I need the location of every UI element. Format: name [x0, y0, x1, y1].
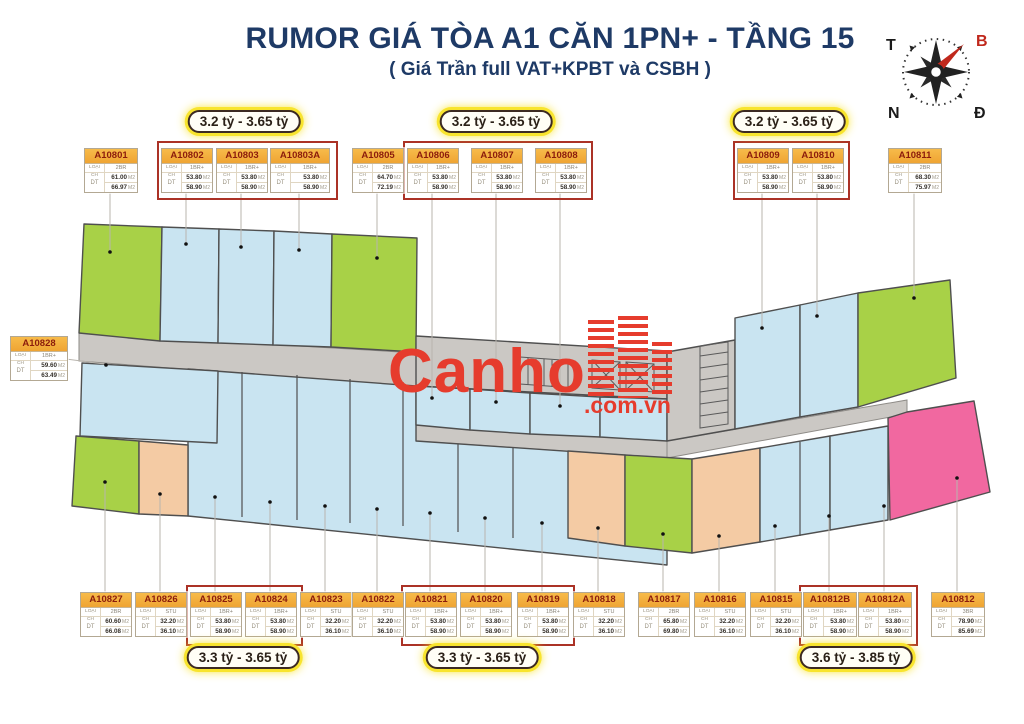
- flyer-page: { "title": "RUMOR GIÁ TÒA A1 CĂN 1PN+ - …: [0, 0, 1024, 724]
- area-number: 58.90: [186, 184, 202, 191]
- area-unit: M2: [287, 619, 294, 625]
- area-unit: M2: [258, 175, 265, 181]
- unit-area-value: 36.10M2: [373, 626, 403, 636]
- unit-area-label: DT: [793, 173, 813, 192]
- unit-marker-dot: [540, 521, 544, 525]
- unit-area-value: 32.20M2: [594, 617, 624, 626]
- area-number: 53.80: [560, 174, 576, 181]
- unit-type: 1BR+: [31, 352, 67, 361]
- compass-rose-icon: T B N Đ: [878, 14, 990, 122]
- unit-marker-dot: [912, 296, 916, 300]
- area-number: 85.69: [958, 628, 974, 635]
- area-unit: M2: [736, 629, 743, 635]
- area-number: 59.60: [41, 362, 57, 369]
- unit-type: 1BR+: [758, 164, 788, 173]
- unit-area-value: 68.30M2: [909, 173, 941, 182]
- unit-id: A10819: [518, 593, 568, 608]
- area-number: 53.80: [215, 618, 231, 625]
- unit-id: A10822: [353, 593, 403, 608]
- area-unit: M2: [847, 619, 854, 625]
- unit-area-value: 58.90M2: [237, 182, 267, 192]
- unit-marker-dot: [239, 245, 243, 249]
- unit-type: 1BR+: [426, 608, 456, 617]
- unit-area-label: DT: [406, 617, 426, 636]
- area-number: 53.80: [186, 174, 202, 181]
- area-unit: M2: [577, 185, 584, 191]
- area-number: 58.90: [215, 628, 231, 635]
- unit-area-value: 63.49M2: [31, 370, 67, 380]
- compass-label-east: Đ: [974, 105, 986, 122]
- unit-type-label: LOẠI CH: [518, 608, 538, 617]
- unit-a10815-a10812b: [760, 436, 830, 542]
- unit-type: 1BR+: [291, 164, 329, 173]
- unit-marker-dot: [323, 504, 327, 508]
- unit-area-label: DT: [136, 617, 156, 636]
- area-unit: M2: [128, 185, 135, 191]
- area-unit: M2: [122, 629, 129, 635]
- area-number: 58.90: [817, 184, 833, 191]
- unit-marker-dot: [297, 248, 301, 252]
- unit-area-label: DT: [162, 173, 182, 192]
- unit-a10805: [331, 234, 417, 352]
- unit-type: 1BR+: [879, 608, 911, 617]
- unit-card: A10818LOẠI CHSTUDT32.20M236.10M2: [573, 592, 625, 637]
- unit-type: STU: [321, 608, 351, 617]
- area-number: 58.90: [485, 628, 501, 635]
- area-unit: M2: [779, 185, 786, 191]
- area-number: 53.80: [762, 174, 778, 181]
- unit-type: 1BR+: [824, 608, 856, 617]
- area-number: 36.10: [775, 628, 791, 635]
- unit-a10828: [80, 363, 218, 443]
- unit-type: 2BR: [373, 164, 403, 173]
- area-number: 72.19: [377, 184, 393, 191]
- unit-type: 2BR: [105, 164, 137, 173]
- unit-id: A10809: [738, 149, 788, 164]
- area-unit: M2: [513, 175, 520, 181]
- unit-marker-dot: [717, 534, 721, 538]
- area-number: 58.90: [560, 184, 576, 191]
- unit-area-value: 53.80M2: [428, 173, 458, 182]
- unit-marker-dot: [955, 476, 959, 480]
- unit-card: A10828LOẠI CH1BR+DT59.60M263.49M2: [10, 336, 68, 381]
- area-number: 63.49: [41, 372, 57, 379]
- area-unit: M2: [342, 619, 349, 625]
- unit-area-value: 32.20M2: [771, 617, 801, 626]
- area-number: 53.80: [430, 618, 446, 625]
- unit-id: A10820: [461, 593, 511, 608]
- unit-area-value: 58.90M2: [481, 626, 511, 636]
- unit-a10803: [218, 229, 274, 345]
- area-number: 32.20: [598, 618, 614, 625]
- unit-area-label: DT: [932, 617, 952, 636]
- unit-id: A10803A: [271, 149, 329, 164]
- unit-card: A10823LOẠI CHSTUDT32.20M236.10M2: [300, 592, 352, 637]
- area-unit: M2: [394, 629, 401, 635]
- area-number: 61.00: [111, 174, 127, 181]
- core-right: [667, 340, 735, 441]
- unit-marker-dot: [184, 242, 188, 246]
- unit-area-label: DT: [301, 617, 321, 636]
- unit-marker-dot: [483, 516, 487, 520]
- area-number: 58.90: [830, 628, 846, 635]
- unit-id: A10807: [472, 149, 522, 164]
- unit-a10816: [692, 448, 760, 553]
- area-number: 66.97: [111, 184, 127, 191]
- area-unit: M2: [447, 619, 454, 625]
- unit-id: A10826: [136, 593, 186, 608]
- area-unit: M2: [559, 629, 566, 635]
- unit-type-label: LOẠI CH: [804, 608, 824, 617]
- area-unit: M2: [975, 629, 982, 635]
- unit-area-label: DT: [472, 173, 492, 192]
- area-number: 58.90: [430, 628, 446, 635]
- unit-area-value: 53.80M2: [492, 173, 522, 182]
- unit-area-value: 58.90M2: [428, 182, 458, 192]
- unit-area-label: DT: [859, 617, 879, 636]
- unit-id: A10806: [408, 149, 458, 164]
- price-badge: 3.2 tỷ - 3.65 tỷ: [440, 110, 553, 133]
- unit-type-label: LOẠI CH: [353, 164, 373, 173]
- area-number: 53.80: [270, 618, 286, 625]
- unit-area-value: 66.97M2: [105, 182, 137, 192]
- unit-card: A10821LOẠI CH1BR+DT53.80M258.90M2: [405, 592, 457, 637]
- unit-id: A10818: [574, 593, 624, 608]
- area-number: 58.90: [303, 184, 319, 191]
- compass-label-north: B: [976, 33, 988, 50]
- unit-area-label: DT: [408, 173, 428, 192]
- unit-id: A10825: [191, 593, 241, 608]
- area-number: 60.60: [105, 618, 121, 625]
- unit-marker-dot: [773, 524, 777, 528]
- unit-area-value: 53.80M2: [211, 617, 241, 626]
- unit-area-label: DT: [11, 361, 31, 380]
- unit-a10826: [139, 441, 188, 516]
- area-number: 53.80: [542, 618, 558, 625]
- area-number: 32.20: [719, 618, 735, 625]
- unit-type-label: LOẠI CH: [536, 164, 556, 173]
- unit-type-label: LOẠI CH: [695, 608, 715, 617]
- unit-area-label: DT: [461, 617, 481, 636]
- unit-marker-dot: [827, 514, 831, 518]
- unit-type-label: LOẠI CH: [406, 608, 426, 617]
- unit-area-label: DT: [81, 617, 101, 636]
- area-unit: M2: [513, 185, 520, 191]
- unit-area-value: 53.80M2: [182, 173, 212, 182]
- unit-type: 2BR: [659, 608, 689, 617]
- unit-area-value: 58.90M2: [492, 182, 522, 192]
- unit-area-value: 58.90M2: [211, 626, 241, 636]
- area-number: 53.80: [303, 174, 319, 181]
- unit-card: A10820LOẠI CH1BR+DT53.80M258.90M2: [460, 592, 512, 637]
- area-number: 53.80: [432, 174, 448, 181]
- unit-card: A10809LOẠI CH1BR+DT53.80M258.90M2: [737, 148, 789, 193]
- unit-area-value: 53.80M2: [426, 617, 456, 626]
- area-number: 36.10: [598, 628, 614, 635]
- area-unit: M2: [177, 629, 184, 635]
- watermark-suffix: .com.vn: [584, 392, 671, 419]
- unit-card: A10822LOẠI CHSTUDT32.20M236.10M2: [352, 592, 404, 637]
- unit-id: A10802: [162, 149, 212, 164]
- unit-type: 1BR+: [538, 608, 568, 617]
- area-unit: M2: [615, 619, 622, 625]
- area-number: 53.80: [885, 618, 901, 625]
- area-unit: M2: [203, 175, 210, 181]
- unit-type: 1BR+: [813, 164, 843, 173]
- unit-type-label: LOẠI CH: [301, 608, 321, 617]
- unit-type: 1BR+: [492, 164, 522, 173]
- unit-id: A10805: [353, 149, 403, 164]
- unit-card: A10812ALOẠI CH1BR+DT53.80M258.90M2: [858, 592, 912, 637]
- unit-area-value: 53.80M2: [758, 173, 788, 182]
- area-unit: M2: [902, 619, 909, 625]
- unit-area-value: 53.80M2: [481, 617, 511, 626]
- unit-marker-dot: [375, 256, 379, 260]
- unit-area-value: 58.90M2: [758, 182, 788, 192]
- area-unit: M2: [232, 629, 239, 635]
- area-unit: M2: [559, 619, 566, 625]
- area-number: 53.80: [241, 174, 257, 181]
- unit-type: STU: [373, 608, 403, 617]
- unit-area-value: 58.90M2: [879, 626, 911, 636]
- area-number: 58.90: [496, 184, 512, 191]
- unit-type: 1BR+: [182, 164, 212, 173]
- unit-id: A10827: [81, 593, 131, 608]
- price-badge: 3.3 tỷ - 3.65 tỷ: [426, 646, 539, 669]
- unit-area-value: 36.10M2: [771, 626, 801, 636]
- unit-card: A10816LOẠI CHSTUDT32.20M236.10M2: [694, 592, 746, 637]
- unit-card: A10827LOẠI CH2BRDT60.60M266.08M2: [80, 592, 132, 637]
- unit-type: 1BR+: [481, 608, 511, 617]
- unit-card: A10824LOẠI CH1BR+DT53.80M258.90M2: [245, 592, 297, 637]
- unit-area-value: 53.80M2: [556, 173, 586, 182]
- unit-marker-dot: [103, 480, 107, 484]
- watermark-brand: Canho: [388, 336, 586, 407]
- area-unit: M2: [779, 175, 786, 181]
- unit-type-label: LOẠI CH: [889, 164, 909, 173]
- area-number: 75.97: [915, 184, 931, 191]
- area-number: 53.80: [830, 618, 846, 625]
- unit-type-label: LOẠI CH: [932, 608, 952, 617]
- area-unit: M2: [258, 185, 265, 191]
- unit-area-value: 36.10M2: [156, 626, 186, 636]
- unit-card: A10826LOẠI CHSTUDT32.20M236.10M2: [135, 592, 187, 637]
- area-unit: M2: [447, 629, 454, 635]
- unit-type-label: LOẠI CH: [751, 608, 771, 617]
- unit-area-value: 58.90M2: [182, 182, 212, 192]
- unit-area-label: DT: [574, 617, 594, 636]
- unit-type: 2BR: [101, 608, 131, 617]
- unit-card: A10810LOẠI CH1BR+DT53.80M258.90M2: [792, 148, 844, 193]
- unit-type: 2BR: [909, 164, 941, 173]
- unit-a10817: [625, 455, 692, 553]
- area-unit: M2: [394, 185, 401, 191]
- unit-type-label: LOẠI CH: [574, 608, 594, 617]
- unit-type-label: LOẠI CH: [353, 608, 373, 617]
- area-number: 66.08: [105, 628, 121, 635]
- area-number: 58.90: [270, 628, 286, 635]
- unit-type-label: LOẠI CH: [162, 164, 182, 173]
- unit-type: STU: [715, 608, 745, 617]
- unit-id: A10812A: [859, 593, 911, 608]
- unit-type: STU: [594, 608, 624, 617]
- area-unit: M2: [975, 619, 982, 625]
- unit-a10812: [888, 401, 990, 520]
- unit-area-label: DT: [217, 173, 237, 192]
- unit-area-label: DT: [751, 617, 771, 636]
- area-unit: M2: [834, 185, 841, 191]
- unit-card: A10807LOẠI CH1BR+DT53.80M258.90M2: [471, 148, 523, 193]
- unit-area-value: 64.70M2: [373, 173, 403, 182]
- unit-area-value: 36.10M2: [594, 626, 624, 636]
- unit-type-label: LOẠI CH: [81, 608, 101, 617]
- unit-area-label: DT: [85, 173, 105, 192]
- unit-type: 1BR+: [266, 608, 296, 617]
- unit-marker-dot: [213, 495, 217, 499]
- area-number: 53.80: [485, 618, 501, 625]
- unit-a10809: [735, 305, 800, 429]
- unit-id: A10812: [932, 593, 984, 608]
- area-unit: M2: [449, 175, 456, 181]
- unit-marker-dot: [760, 326, 764, 330]
- area-number: 64.70: [377, 174, 393, 181]
- area-number: 53.80: [496, 174, 512, 181]
- area-unit: M2: [502, 629, 509, 635]
- unit-area-label: DT: [738, 173, 758, 192]
- unit-id: A10817: [639, 593, 689, 608]
- unit-marker-dot: [268, 500, 272, 504]
- area-unit: M2: [680, 629, 687, 635]
- unit-area-value: 53.80M2: [237, 173, 267, 182]
- unit-card: A10815LOẠI CHSTUDT32.20M236.10M2: [750, 592, 802, 637]
- unit-card: A10817LOẠI CH2BRDT65.80M269.80M2: [638, 592, 690, 637]
- unit-area-value: 53.80M2: [824, 617, 856, 626]
- unit-area-value: 85.69M2: [952, 626, 984, 636]
- unit-marker-dot: [108, 250, 112, 254]
- area-number: 32.20: [377, 618, 393, 625]
- area-number: 58.90: [241, 184, 257, 191]
- unit-id: A10808: [536, 149, 586, 164]
- unit-id: A10801: [85, 149, 137, 164]
- unit-area-label: DT: [518, 617, 538, 636]
- area-unit: M2: [320, 185, 327, 191]
- unit-area-value: 58.90M2: [556, 182, 586, 192]
- unit-area-value: 58.90M2: [824, 626, 856, 636]
- unit-type-label: LOẠI CH: [793, 164, 813, 173]
- unit-card: A10802LOẠI CH1BR+DT53.80M258.90M2: [161, 148, 213, 193]
- unit-area-value: 53.80M2: [538, 617, 568, 626]
- area-unit: M2: [287, 629, 294, 635]
- watermark-building-icon: [588, 316, 672, 398]
- area-unit: M2: [736, 619, 743, 625]
- unit-type-label: LOẠI CH: [217, 164, 237, 173]
- area-unit: M2: [232, 619, 239, 625]
- unit-id: A10803: [217, 149, 267, 164]
- area-unit: M2: [394, 175, 401, 181]
- area-number: 36.10: [160, 628, 176, 635]
- area-unit: M2: [792, 629, 799, 635]
- unit-type-label: LOẠI CH: [639, 608, 659, 617]
- unit-type: STU: [771, 608, 801, 617]
- unit-card: A10803ALOẠI CH1BR+DT53.80M258.90M2: [270, 148, 330, 193]
- unit-area-label: DT: [353, 173, 373, 192]
- area-number: 32.20: [325, 618, 341, 625]
- area-number: 78.90: [958, 618, 974, 625]
- unit-area-value: 32.20M2: [715, 617, 745, 626]
- unit-type-label: LOẠI CH: [859, 608, 879, 617]
- unit-card: A10803LOẠI CH1BR+DT53.80M258.90M2: [216, 148, 268, 193]
- area-unit: M2: [394, 619, 401, 625]
- unit-type: 1BR+: [428, 164, 458, 173]
- unit-area-value: 53.80M2: [291, 173, 329, 182]
- area-unit: M2: [577, 175, 584, 181]
- unit-marker-dot: [596, 526, 600, 530]
- unit-card: A10812BLOẠI CH1BR+DT53.80M258.90M2: [803, 592, 857, 637]
- area-number: 58.90: [542, 628, 558, 635]
- area-number: 58.90: [762, 184, 778, 191]
- area-unit: M2: [932, 185, 939, 191]
- unit-area-value: 58.90M2: [813, 182, 843, 192]
- unit-type-label: LOẠI CH: [408, 164, 428, 173]
- area-number: 36.10: [325, 628, 341, 635]
- area-unit: M2: [792, 619, 799, 625]
- area-unit: M2: [449, 185, 456, 191]
- area-unit: M2: [320, 175, 327, 181]
- price-badge: 3.2 tỷ - 3.65 tỷ: [188, 110, 301, 133]
- unit-marker-dot: [104, 363, 108, 367]
- unit-a10818: [568, 451, 625, 546]
- unit-type-label: LOẠI CH: [271, 164, 291, 173]
- unit-area-value: 69.80M2: [659, 626, 689, 636]
- area-number: 32.20: [775, 618, 791, 625]
- unit-area-value: 75.97M2: [909, 182, 941, 192]
- unit-area-label: DT: [271, 173, 291, 192]
- area-number: 68.30: [915, 174, 931, 181]
- area-number: 36.10: [377, 628, 393, 635]
- price-badge: 3.6 tỷ - 3.85 tỷ: [800, 646, 913, 669]
- unit-area-label: DT: [353, 617, 373, 636]
- unit-a10811: [858, 280, 956, 407]
- unit-type-label: LOẠI CH: [738, 164, 758, 173]
- area-number: 32.20: [160, 618, 176, 625]
- unit-area-label: DT: [695, 617, 715, 636]
- unit-type-label: LOẠI CH: [191, 608, 211, 617]
- unit-area-label: DT: [804, 617, 824, 636]
- unit-card: A10825LOẠI CH1BR+DT53.80M258.90M2: [190, 592, 242, 637]
- unit-type-label: LOẠI CH: [11, 352, 31, 361]
- unit-marker-dot: [815, 314, 819, 318]
- area-unit: M2: [58, 373, 65, 379]
- unit-area-value: 66.08M2: [101, 626, 131, 636]
- unit-type: STU: [156, 608, 186, 617]
- unit-area-value: 36.10M2: [715, 626, 745, 636]
- unit-area-value: 32.20M2: [373, 617, 403, 626]
- unit-marker-dot: [882, 504, 886, 508]
- area-unit: M2: [680, 619, 687, 625]
- unit-area-value: 60.60M2: [101, 617, 131, 626]
- unit-area-value: 78.90M2: [952, 617, 984, 626]
- unit-id: A10824: [246, 593, 296, 608]
- area-unit: M2: [342, 629, 349, 635]
- unit-area-value: 59.60M2: [31, 361, 67, 370]
- unit-area-value: 32.20M2: [321, 617, 351, 626]
- unit-id: A10816: [695, 593, 745, 608]
- unit-card: A10811LOẠI CH2BRDT68.30M275.97M2: [888, 148, 942, 193]
- unit-id: A10810: [793, 149, 843, 164]
- unit-area-label: DT: [536, 173, 556, 192]
- unit-marker-dot: [158, 492, 162, 496]
- area-number: 53.80: [817, 174, 833, 181]
